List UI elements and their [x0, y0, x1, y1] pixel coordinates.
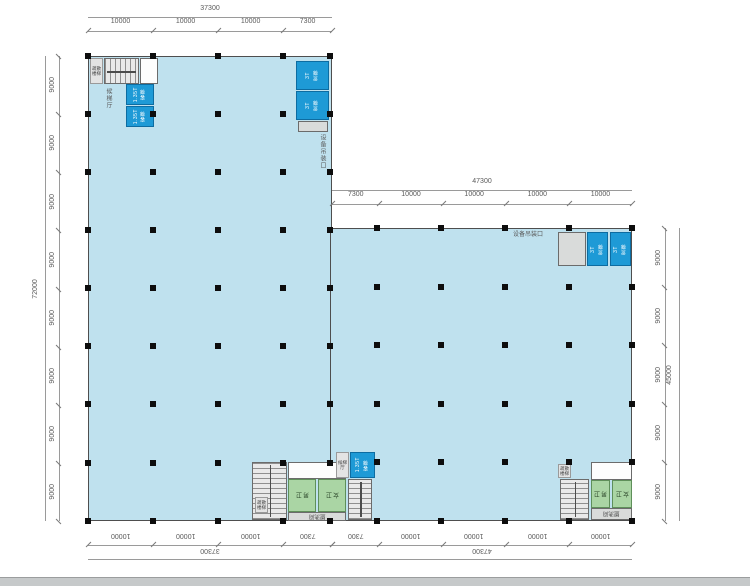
column-marker — [150, 53, 156, 59]
column-marker — [438, 401, 444, 407]
stair-vestibule-top-left — [140, 58, 158, 84]
column-marker — [215, 227, 221, 233]
lift-capacity: 1.35T — [134, 109, 140, 124]
lift-name: 货梯 — [599, 244, 605, 255]
column-marker — [280, 285, 286, 291]
staircase-bottom-centre — [348, 479, 372, 520]
dimension-row: 10000 — [218, 18, 283, 31]
column-marker — [327, 401, 333, 407]
dimension-value: 10000 — [111, 18, 130, 25]
dimension-value: 10000 — [528, 532, 547, 539]
dimension-row: 9000 — [46, 114, 59, 172]
dimension-row: 72000 — [32, 56, 46, 521]
column-marker — [374, 342, 380, 348]
dimension-value: 10000 — [176, 532, 195, 539]
lift-capacity: 3T — [306, 72, 312, 79]
dimension-row: 1000010000100007300 — [88, 532, 332, 546]
stair-label: 疏散楼梯 — [255, 497, 268, 513]
dimension-value: 7300 — [300, 532, 316, 539]
lift-name: 货梯 — [314, 100, 320, 111]
dimension-value: 9000 — [49, 426, 56, 442]
dimension-row: 10000 — [379, 191, 442, 204]
dimension-row: 1000010000100007300 — [88, 18, 332, 32]
column-marker — [85, 227, 91, 233]
dimension-row: 90009000900090009000900090009000 — [46, 56, 60, 521]
column-marker — [150, 460, 156, 466]
column-marker — [629, 459, 635, 465]
dimension-row: 9000 — [46, 56, 59, 114]
column-marker — [215, 460, 221, 466]
dimension-value: 10000 — [176, 18, 195, 25]
dimension-row: 9000 — [46, 463, 59, 521]
column-marker — [150, 343, 156, 349]
column-marker — [85, 111, 91, 117]
column-marker — [215, 285, 221, 291]
toilet-male-centre: 男卫 — [288, 479, 316, 512]
column-marker — [327, 53, 333, 59]
toilet-female-centre: 女卫 — [318, 479, 346, 512]
dimension-value: 45000 — [666, 365, 673, 384]
dimension-row: 90009000900090009000 — [652, 228, 666, 521]
staircase-top-left — [104, 58, 139, 84]
dimension-value: 9000 — [49, 135, 56, 151]
lift-name: 货梯 — [622, 244, 628, 255]
freight-lift-1: 3T 货梯 — [296, 61, 329, 90]
sheet-edge-bar — [0, 577, 750, 586]
freight-vestibule-top — [298, 121, 328, 132]
column-marker — [438, 342, 444, 348]
washroom-centre: 盥洗间 — [288, 512, 346, 521]
column-marker — [280, 169, 286, 175]
dimension-value: 37300 — [200, 547, 219, 554]
dimension-row: 7300 — [332, 191, 379, 204]
column-marker — [280, 460, 286, 466]
dimension-value: 7300 — [300, 18, 316, 25]
dimension-row: 47300 — [332, 546, 632, 560]
toilet-label: 男卫 — [295, 491, 309, 500]
dimension-row: 10000 — [443, 532, 506, 545]
dimension-value: 7300 — [348, 532, 364, 539]
toilet-female-right: 女卫 — [612, 480, 632, 508]
dimension-value: 9000 — [655, 308, 662, 324]
dimension-value: 9000 — [49, 194, 56, 210]
column-marker — [566, 284, 572, 290]
column-marker — [566, 342, 572, 348]
column-marker — [150, 169, 156, 175]
dimension-row: 7300 — [283, 18, 332, 31]
column-marker — [85, 169, 91, 175]
dimension-value: 9000 — [655, 425, 662, 441]
lift-capacity: 1.35T — [356, 457, 362, 472]
dimension-row: 9000 — [46, 347, 59, 405]
dimension-row: 10000 — [569, 532, 632, 545]
lift-capacity: 3T — [306, 102, 312, 109]
dimension-row: 47300 — [332, 177, 632, 191]
dimension-value: 9000 — [49, 252, 56, 268]
column-marker — [629, 401, 635, 407]
lift-name: 货梯 — [314, 70, 320, 81]
lift-name: 客梯 — [141, 89, 147, 100]
toilet-label: 男卫 — [593, 490, 607, 499]
column-marker — [150, 111, 156, 117]
lift-capacity: 1.35T — [134, 87, 140, 102]
column-marker — [502, 459, 508, 465]
column-marker — [85, 460, 91, 466]
equipment-hoist-label-right: 设备吊装口 — [513, 229, 543, 238]
column-marker — [438, 459, 444, 465]
column-marker — [629, 284, 635, 290]
dimension-value: 9000 — [49, 77, 56, 93]
equipment-hoist-label-left: 设备吊装口 — [318, 134, 327, 192]
column-marker — [438, 225, 444, 231]
dimension-value: 9000 — [655, 250, 662, 266]
dimension-value: 9000 — [49, 368, 56, 384]
column-marker — [374, 518, 380, 524]
staircase-bottom-right — [560, 479, 589, 520]
washroom-label: 盥洗间 — [309, 513, 326, 521]
dimension-value: 7300 — [348, 191, 364, 198]
passenger-lift-1: 1.35T 客梯 — [126, 84, 154, 105]
dimension-row: 9000 — [652, 462, 665, 521]
dimension-row: 9000 — [46, 405, 59, 463]
column-marker — [150, 285, 156, 291]
dimension-top-left: 373001000010000100007300 — [88, 4, 332, 32]
column-marker — [502, 284, 508, 290]
column-marker — [629, 342, 635, 348]
freight-vestibule-right — [558, 232, 586, 266]
lift-lobby-label: 候梯厅 — [104, 88, 113, 118]
dimension-value: 9000 — [49, 484, 56, 500]
toilet-label: 女卫 — [615, 490, 629, 499]
column-marker — [215, 169, 221, 175]
dimension-row: 45000 — [666, 228, 680, 521]
column-marker — [374, 225, 380, 231]
dimension-row: 10000 — [218, 532, 283, 545]
dimension-row: 9000 — [46, 172, 59, 230]
column-marker — [280, 518, 286, 524]
dimension-row: 7300 — [283, 532, 332, 545]
dimension-value: 9000 — [655, 484, 662, 500]
column-marker — [629, 225, 635, 231]
freight-lift-2: 3T 货梯 — [296, 91, 329, 120]
column-marker — [215, 401, 221, 407]
dimension-row: 10000 — [153, 532, 218, 545]
dimension-row: 10000 — [379, 532, 442, 545]
column-marker — [566, 225, 572, 231]
dimension-value: 10000 — [401, 532, 420, 539]
dimension-value: 37300 — [200, 5, 219, 12]
column-marker — [85, 53, 91, 59]
dimension-value: 47300 — [472, 547, 491, 554]
column-marker — [280, 53, 286, 59]
dimension-row: 37300 — [88, 546, 332, 560]
dimension-value: 72000 — [32, 279, 39, 298]
column-marker — [150, 401, 156, 407]
dimension-value: 10000 — [528, 191, 547, 198]
dimension-row: 10000 — [569, 191, 632, 204]
column-marker — [327, 518, 333, 524]
column-marker — [280, 401, 286, 407]
freight-lift-4: 3T 货梯 — [610, 232, 631, 266]
column-marker — [374, 284, 380, 290]
column-marker — [280, 343, 286, 349]
dimension-value: 10000 — [464, 532, 483, 539]
dimension-row: 9000 — [46, 230, 59, 288]
dimension-bottom-left: 100001000010000730037300 — [88, 532, 332, 560]
dimension-row: 730010000100001000010000 — [332, 191, 632, 205]
washroom-right: 盥洗间 — [591, 508, 632, 520]
dimension-value: 9000 — [49, 310, 56, 326]
dimension-value: 10000 — [464, 191, 483, 198]
column-marker — [374, 401, 380, 407]
toilet-vestibule-right — [591, 462, 632, 480]
lift-name: 客梯 — [364, 460, 370, 471]
column-marker — [327, 343, 333, 349]
column-marker — [85, 343, 91, 349]
dimension-row: 10000 — [88, 532, 153, 545]
column-marker — [327, 285, 333, 291]
dimension-value: 10000 — [401, 191, 420, 198]
column-marker — [502, 342, 508, 348]
column-marker — [566, 518, 572, 524]
column-marker — [438, 518, 444, 524]
dimension-row: 730010000100001000010000 — [332, 532, 632, 546]
dimension-row: 9000 — [652, 345, 665, 404]
column-marker — [150, 227, 156, 233]
column-marker — [327, 460, 333, 466]
column-marker — [85, 285, 91, 291]
lift-capacity: 3T — [614, 246, 620, 253]
dimension-value: 10000 — [591, 532, 610, 539]
lift-lobby-mini-label: 候梯厅 — [336, 452, 349, 478]
column-marker — [502, 401, 508, 407]
column-marker — [502, 518, 508, 524]
dimension-row: 7300 — [332, 532, 379, 545]
column-marker — [85, 401, 91, 407]
column-marker — [85, 518, 91, 524]
column-marker — [438, 284, 444, 290]
column-marker — [502, 225, 508, 231]
dimension-value: 10000 — [241, 18, 260, 25]
column-marker — [327, 169, 333, 175]
stair-label: 疏散楼梯 — [90, 58, 103, 84]
column-marker — [215, 343, 221, 349]
lift-capacity: 3T — [591, 246, 597, 253]
dimension-value: 47300 — [472, 178, 491, 185]
dimension-top-right: 47300730010000100001000010000 — [332, 177, 632, 205]
dimension-row: 10000 — [506, 191, 569, 204]
stair-label: 疏散楼梯 — [558, 464, 571, 478]
dimension-value: 10000 — [241, 532, 260, 539]
column-marker — [629, 518, 635, 524]
dimension-value: 10000 — [591, 191, 610, 198]
dimension-row: 9000 — [652, 228, 665, 287]
floor-plan: 373001000010000100007300 473007300100001… — [0, 0, 750, 586]
dimension-row: 37300 — [88, 4, 332, 18]
column-marker — [566, 459, 572, 465]
passenger-lift-3: 1.35T 客梯 — [350, 452, 375, 478]
dimension-row: 10000 — [153, 18, 218, 31]
column-marker — [327, 111, 333, 117]
column-marker — [215, 53, 221, 59]
dimension-row: 9000 — [46, 289, 59, 347]
dimension-row: 9000 — [652, 287, 665, 346]
left-wing-floor — [88, 56, 332, 521]
column-marker — [150, 518, 156, 524]
dimension-left-side: 7200090009000900090009000900090009000 — [32, 56, 60, 521]
dimension-value: 9000 — [655, 367, 662, 383]
toilet-label: 女卫 — [325, 491, 339, 500]
dimension-right-side: 9000900090009000900045000 — [652, 228, 680, 521]
washroom-label: 盥洗间 — [603, 510, 620, 518]
dimension-row: 10000 — [88, 18, 153, 31]
dimension-value: 10000 — [111, 532, 130, 539]
column-marker — [327, 227, 333, 233]
column-marker — [215, 518, 221, 524]
right-wing-floor — [330, 228, 632, 521]
column-marker — [215, 111, 221, 117]
column-marker — [280, 111, 286, 117]
column-marker — [566, 401, 572, 407]
toilet-male-right: 男卫 — [591, 480, 610, 508]
dimension-row: 10000 — [506, 532, 569, 545]
dimension-row: 10000 — [443, 191, 506, 204]
dimension-row: 9000 — [652, 404, 665, 463]
dimension-bottom-right: 73001000010000100001000047300 — [332, 532, 632, 560]
lift-name: 客梯 — [141, 111, 147, 122]
column-marker — [374, 459, 380, 465]
freight-lift-3: 3T 货梯 — [587, 232, 608, 266]
column-marker — [280, 227, 286, 233]
